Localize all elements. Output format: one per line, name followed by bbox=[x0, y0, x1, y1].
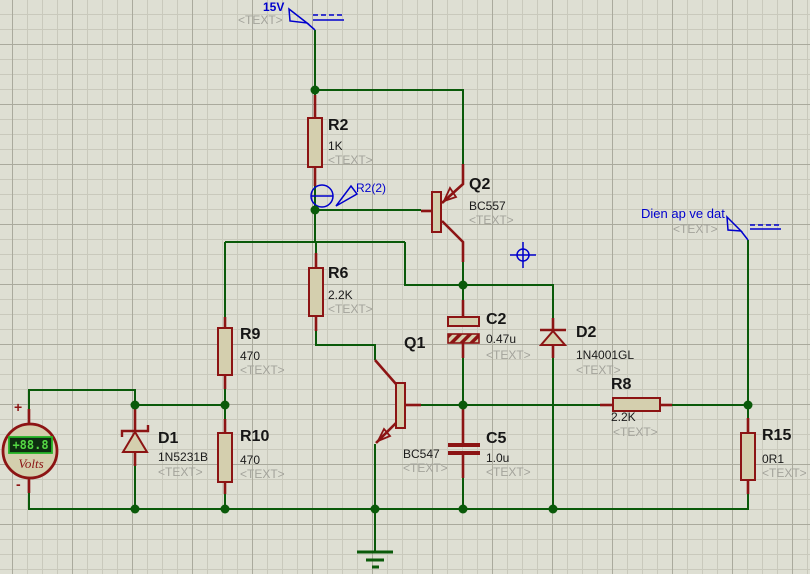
terminal-flag-icon[interactable] bbox=[289, 9, 307, 23]
junction-dot bbox=[744, 401, 753, 410]
diode-triangle[interactable] bbox=[123, 432, 147, 452]
meter-plus-sign: + bbox=[14, 400, 22, 415]
part-ref-c5[interactable]: C5 bbox=[486, 430, 506, 448]
collector-lead[interactable] bbox=[442, 221, 463, 262]
wire[interactable] bbox=[405, 242, 553, 318]
part-value-d1[interactable]: 1N5231B bbox=[158, 451, 208, 464]
junction-dot bbox=[459, 401, 468, 410]
part-ref-d2[interactable]: D2 bbox=[576, 324, 596, 342]
part-ref-r8[interactable]: R8 bbox=[611, 376, 631, 394]
capacitor-plate[interactable] bbox=[448, 451, 480, 455]
resistor-body[interactable] bbox=[309, 268, 323, 316]
part-text-r6: <TEXT> bbox=[328, 303, 373, 316]
resistor-body[interactable] bbox=[218, 433, 232, 482]
part-text-q2: <TEXT> bbox=[469, 214, 514, 227]
collector-lead[interactable] bbox=[375, 360, 396, 384]
part-value-d2[interactable]: 1N4001GL bbox=[576, 349, 634, 362]
part-text-q1: <TEXT> bbox=[403, 462, 448, 475]
resistor-body[interactable] bbox=[218, 328, 232, 375]
junction-dot bbox=[311, 86, 320, 95]
schematic-canvas: 15V <TEXT> R2(2) Dien ap ve dat <TEXT> R… bbox=[0, 0, 810, 574]
part-ref-r6[interactable]: R6 bbox=[328, 265, 348, 283]
terminal-pin[interactable] bbox=[307, 23, 315, 30]
part-text-output: <TEXT> bbox=[673, 223, 718, 236]
junction-dot bbox=[311, 206, 320, 215]
diode-triangle[interactable] bbox=[541, 331, 565, 345]
origin-marker-icon bbox=[510, 242, 536, 268]
part-value-r2[interactable]: 1K bbox=[328, 140, 343, 153]
transistor-Q1[interactable] bbox=[375, 360, 421, 443]
resistor-R6[interactable] bbox=[309, 253, 323, 331]
junction-dot bbox=[459, 505, 468, 514]
part-ref-d1[interactable]: D1 bbox=[158, 430, 178, 448]
meter-unit-label: Volts bbox=[6, 457, 56, 471]
voltage-probe[interactable] bbox=[311, 185, 357, 207]
capacitor-plate[interactable] bbox=[448, 317, 479, 326]
capacitor-plate-hatched[interactable] bbox=[448, 334, 479, 343]
part-ref-c2[interactable]: C2 bbox=[486, 311, 506, 329]
diode-D2[interactable] bbox=[540, 318, 566, 358]
capacitor-C5[interactable] bbox=[448, 407, 480, 478]
part-ref-r9[interactable]: R9 bbox=[240, 326, 260, 344]
resistor-body[interactable] bbox=[308, 118, 322, 167]
junction-dot bbox=[131, 505, 140, 514]
resistor-R2[interactable] bbox=[308, 95, 322, 186]
part-text-r10: <TEXT> bbox=[240, 468, 285, 481]
part-value-q2[interactable]: BC557 bbox=[469, 200, 506, 213]
part-value-r8[interactable]: 2.2K bbox=[611, 411, 636, 424]
part-text-r15: <TEXT> bbox=[762, 467, 807, 480]
resistor-body[interactable] bbox=[741, 433, 755, 480]
resistor-R10[interactable] bbox=[218, 419, 232, 494]
part-ref-r2[interactable]: R2 bbox=[328, 117, 348, 135]
part-value-c5[interactable]: 1.0u bbox=[486, 452, 509, 465]
schematic-drawing bbox=[0, 0, 810, 574]
part-ref-q1[interactable]: Q1 bbox=[404, 335, 425, 353]
part-text-d1: <TEXT> bbox=[158, 466, 203, 479]
part-value-q1[interactable]: BC547 bbox=[403, 448, 440, 461]
part-text-15v: <TEXT> bbox=[238, 14, 283, 27]
terminal-flag-icon[interactable] bbox=[727, 217, 741, 231]
part-text-r2: <TEXT> bbox=[328, 154, 373, 167]
resistor-R15[interactable] bbox=[741, 418, 755, 494]
part-value-r15[interactable]: 0R1 bbox=[762, 453, 784, 466]
part-ref-q2[interactable]: Q2 bbox=[469, 176, 490, 194]
transistor-bar[interactable] bbox=[432, 192, 441, 232]
transistor-Q2[interactable] bbox=[421, 164, 463, 262]
capacitor-C2[interactable] bbox=[448, 300, 479, 358]
probe-label[interactable]: R2(2) bbox=[356, 182, 386, 195]
power-terminal-15v[interactable] bbox=[289, 9, 344, 30]
transistor-bar[interactable] bbox=[396, 383, 405, 428]
junction-dot bbox=[131, 401, 140, 410]
net-label-output[interactable]: Dien ap ve dat bbox=[641, 207, 725, 221]
terminal-pin[interactable] bbox=[741, 231, 748, 240]
part-value-r10[interactable]: 470 bbox=[240, 454, 260, 467]
probe-arrow-icon[interactable] bbox=[336, 186, 357, 206]
part-value-r9[interactable]: 470 bbox=[240, 350, 260, 363]
junction-dot bbox=[221, 401, 230, 410]
part-text-r8: <TEXT> bbox=[613, 426, 658, 439]
junction-dot bbox=[549, 505, 558, 514]
part-text-c5: <TEXT> bbox=[486, 466, 531, 479]
junction-dot bbox=[221, 505, 230, 514]
ground-symbol[interactable] bbox=[357, 509, 393, 567]
part-ref-r10[interactable]: R10 bbox=[240, 428, 269, 446]
part-ref-r15[interactable]: R15 bbox=[762, 427, 791, 445]
power-terminal-output[interactable] bbox=[727, 217, 781, 240]
resistor-R9[interactable] bbox=[218, 317, 232, 389]
meter-minus-sign: - bbox=[16, 477, 21, 492]
meter-reading: +88.8 bbox=[9, 439, 52, 452]
zener-diode-D1[interactable] bbox=[122, 409, 148, 466]
part-value-r6[interactable]: 2.2K bbox=[328, 289, 353, 302]
junction-dot bbox=[371, 505, 380, 514]
wire[interactable] bbox=[316, 331, 375, 360]
capacitor-plate[interactable] bbox=[448, 443, 480, 447]
junction-dot bbox=[459, 281, 468, 290]
part-text-r9: <TEXT> bbox=[240, 364, 285, 377]
wire[interactable] bbox=[29, 390, 135, 409]
part-value-c2[interactable]: 0.47u bbox=[486, 333, 516, 346]
part-text-c2: <TEXT> bbox=[486, 349, 531, 362]
